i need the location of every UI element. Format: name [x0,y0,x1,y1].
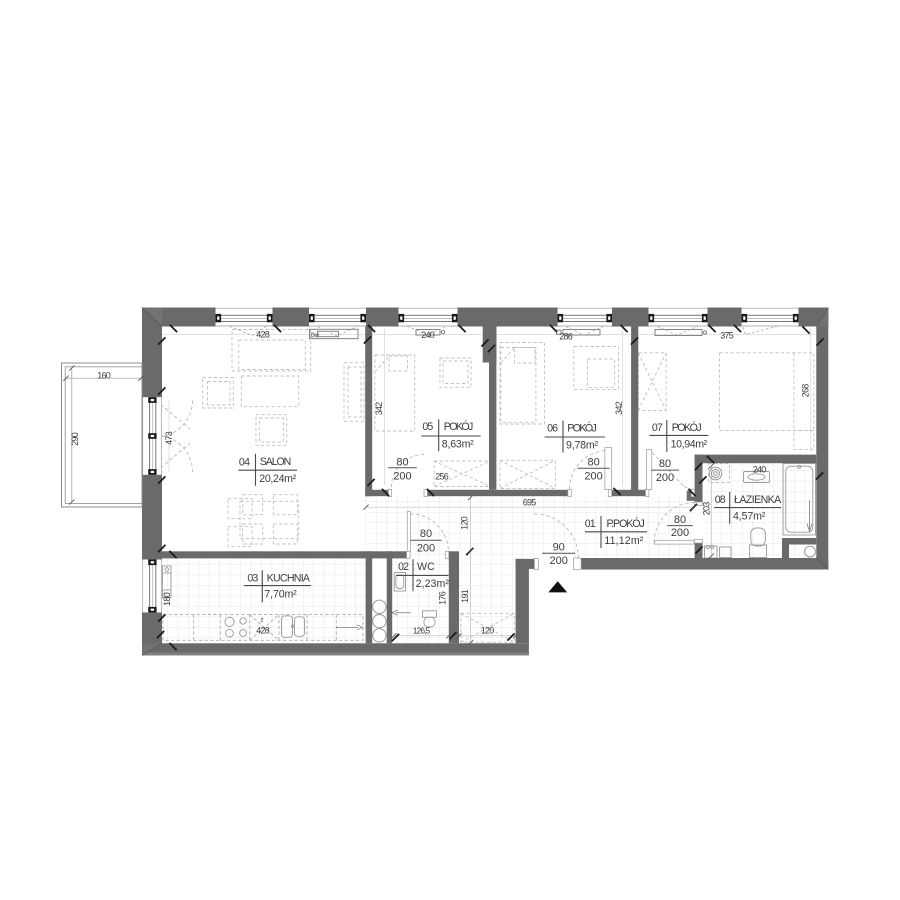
svg-text:KUCHNIA: KUCHNIA [267,572,311,584]
svg-text:01: 01 [585,518,596,530]
svg-text:126,5: 126,5 [413,625,431,635]
svg-text:200: 200 [584,470,602,482]
svg-text:200: 200 [550,555,568,567]
svg-text:90: 90 [553,542,565,554]
svg-text:290: 290 [70,432,80,446]
svg-text:ŁAZIENKA: ŁAZIENKA [734,494,782,506]
svg-text:P.POKÓJ: P.POKÓJ [607,517,645,530]
svg-text:342: 342 [374,402,384,416]
svg-text:200: 200 [671,527,689,539]
svg-text:08: 08 [715,494,726,506]
svg-text:SALON: SALON [260,456,292,468]
svg-text:342: 342 [614,401,624,415]
svg-text:07: 07 [652,422,663,434]
svg-text:473: 473 [164,431,174,445]
svg-text:268: 268 [801,384,811,398]
svg-text:256: 256 [435,472,449,482]
svg-text:120: 120 [460,516,470,530]
svg-text:WC: WC [417,561,435,573]
svg-text:160: 160 [97,371,111,381]
svg-text:POKÓJ: POKÓJ [444,420,474,433]
svg-text:03: 03 [247,572,258,584]
svg-text:176: 176 [438,591,448,605]
svg-text:80: 80 [396,457,408,469]
svg-text:200: 200 [393,470,411,482]
svg-text:10,94m²: 10,94m² [671,439,708,451]
svg-text:375: 375 [720,331,734,341]
svg-text:9,78m²: 9,78m² [566,439,598,451]
svg-text:7,70m²: 7,70m² [264,589,297,601]
svg-text:POKÓJ: POKÓJ [672,421,702,434]
svg-text:05: 05 [422,421,433,433]
svg-text:428: 428 [256,329,270,339]
svg-text:240: 240 [753,465,767,475]
svg-text:11,12m²: 11,12m² [604,535,643,547]
svg-text:191: 191 [460,589,470,603]
svg-text:POKÓJ: POKÓJ [567,422,597,435]
svg-text:428: 428 [256,626,270,636]
svg-text:695: 695 [523,498,537,508]
svg-text:240: 240 [421,330,435,340]
svg-text:2,23m²: 2,23m² [416,578,450,590]
svg-text:180: 180 [162,592,172,606]
svg-text:80: 80 [659,458,671,470]
svg-text:z: z [261,618,264,624]
svg-text:200: 200 [417,543,435,555]
svg-text:286: 286 [559,332,573,342]
svg-text:8,63m²: 8,63m² [442,438,474,450]
svg-text:04: 04 [239,456,250,468]
svg-text:80: 80 [420,528,432,540]
svg-text:200: 200 [656,472,674,484]
svg-text:203: 203 [702,502,712,516]
svg-text:4,57m²: 4,57m² [733,511,766,523]
svg-text:120: 120 [481,625,495,635]
svg-text:80: 80 [674,514,686,526]
svg-text:80: 80 [587,456,599,468]
svg-text:02: 02 [398,561,409,573]
svg-text:06: 06 [547,423,558,435]
svg-text:20,24m²: 20,24m² [259,473,296,485]
